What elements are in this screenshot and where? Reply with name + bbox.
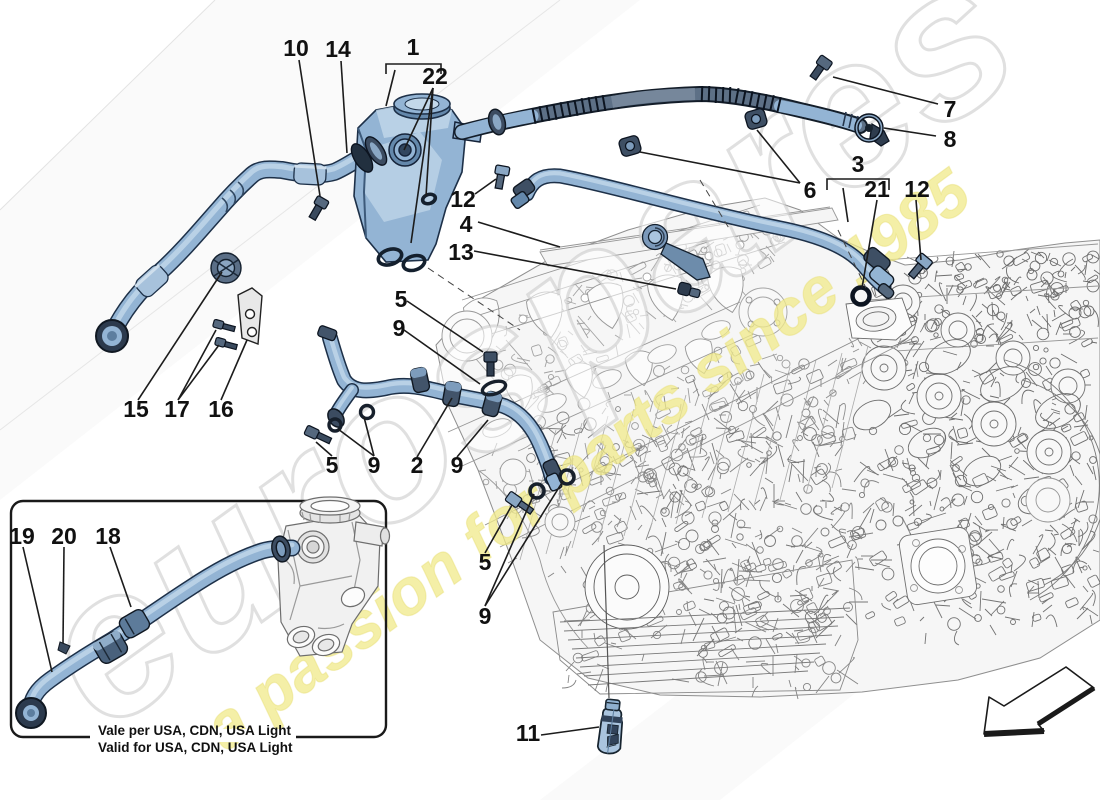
svg-text:8: 8 (944, 126, 957, 152)
svg-text:19: 19 (9, 523, 35, 549)
svg-text:9: 9 (479, 603, 492, 629)
svg-text:9: 9 (393, 315, 406, 341)
svg-text:18: 18 (95, 523, 121, 549)
svg-text:17: 17 (164, 396, 190, 422)
svg-text:1: 1 (407, 34, 420, 60)
svg-text:Valid for USA, CDN, USA Light: Valid for USA, CDN, USA Light (98, 740, 293, 755)
svg-text:12: 12 (904, 176, 930, 202)
svg-text:5: 5 (326, 452, 339, 478)
svg-text:20: 20 (51, 523, 77, 549)
svg-text:12: 12 (450, 186, 476, 212)
svg-text:7: 7 (944, 96, 957, 122)
svg-text:22: 22 (422, 63, 448, 89)
svg-text:15: 15 (123, 396, 149, 422)
svg-text:2: 2 (411, 452, 424, 478)
svg-text:10: 10 (283, 35, 309, 61)
svg-text:Vale per USA, CDN, USA Light: Vale per USA, CDN, USA Light (98, 723, 292, 738)
svg-text:6: 6 (804, 177, 817, 203)
svg-text:14: 14 (325, 36, 351, 62)
svg-text:3: 3 (852, 151, 865, 177)
svg-text:16: 16 (208, 396, 234, 422)
svg-text:5: 5 (479, 549, 492, 575)
svg-text:21: 21 (864, 176, 890, 202)
svg-text:9: 9 (368, 452, 381, 478)
svg-text:9: 9 (451, 452, 464, 478)
svg-text:4: 4 (460, 211, 473, 237)
svg-text:5: 5 (395, 286, 408, 312)
svg-text:13: 13 (448, 239, 474, 265)
svg-text:11: 11 (516, 720, 541, 746)
